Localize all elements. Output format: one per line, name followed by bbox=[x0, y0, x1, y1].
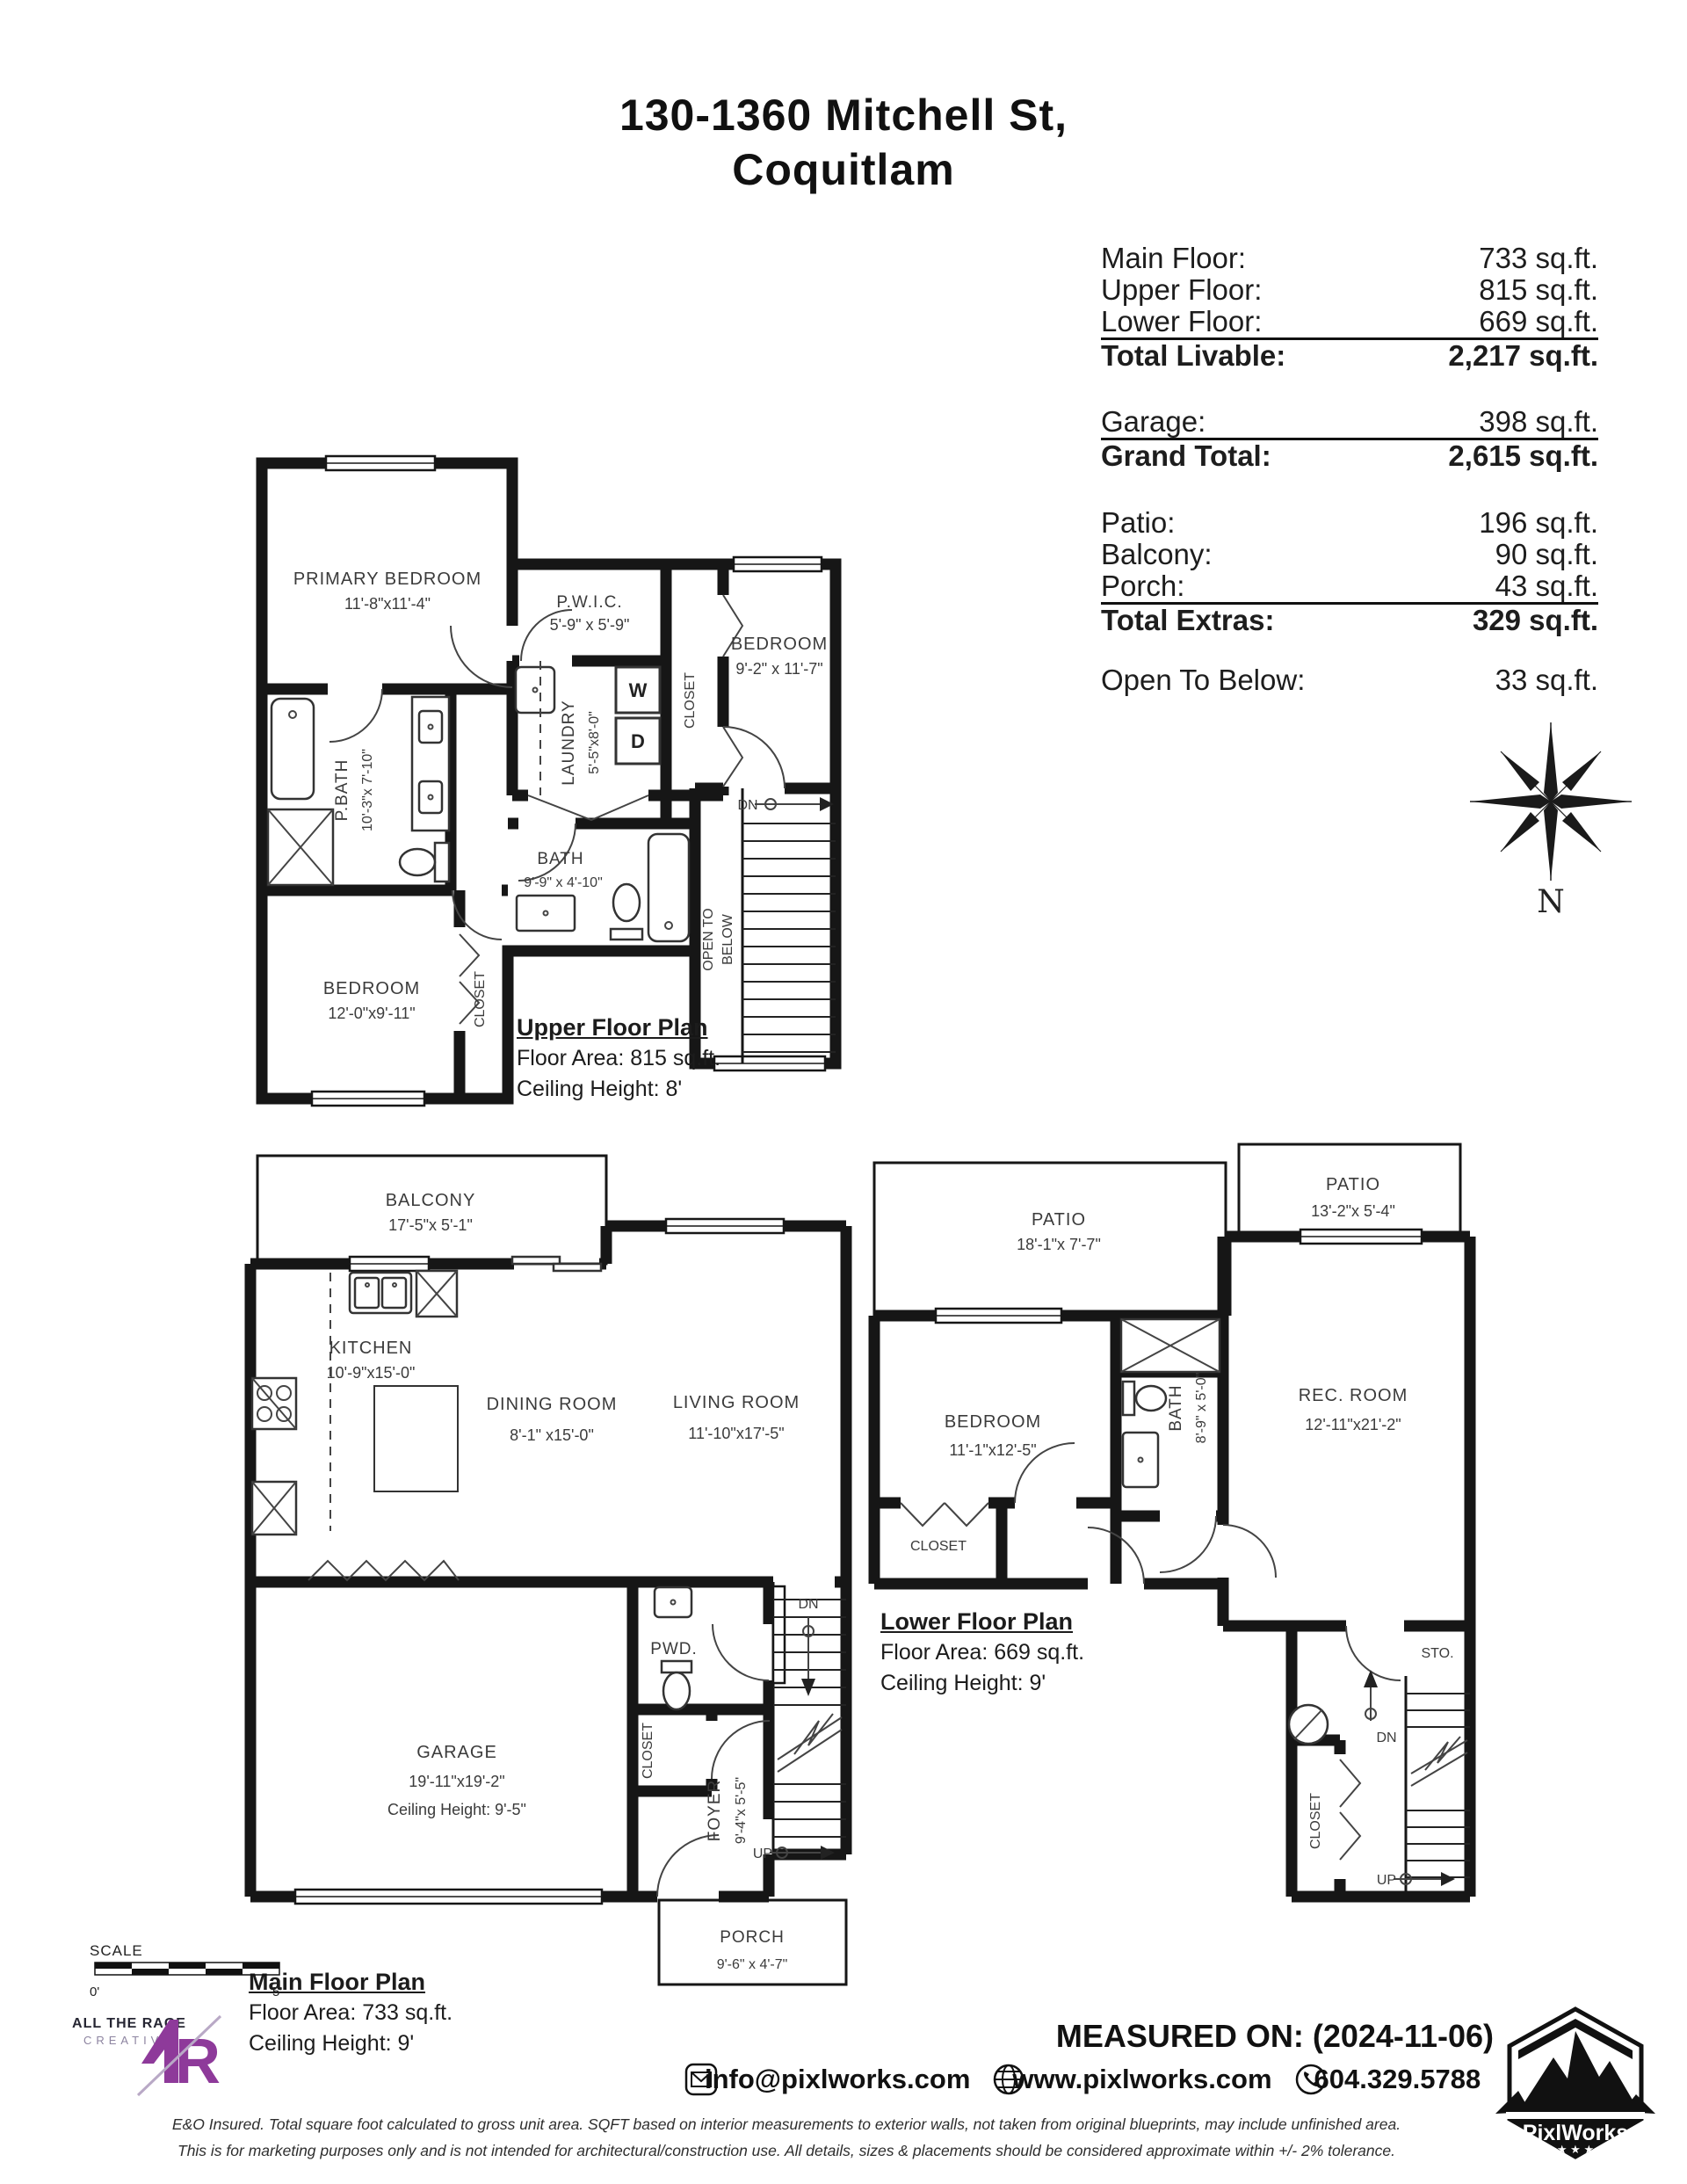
plan-area: Floor Area: 669 sq.ft. bbox=[880, 1637, 1084, 1668]
plan-name: Upper Floor Plan bbox=[517, 1012, 720, 1043]
area-value: 815 sq.ft. bbox=[1479, 274, 1598, 306]
room-dims: 9'-9" x 4'-10" bbox=[524, 875, 603, 890]
room-label: KITCHEN bbox=[329, 1339, 413, 1358]
phone-text: 604.329.5788 bbox=[1314, 2064, 1481, 2095]
room-label: BATH bbox=[537, 850, 583, 868]
sliding-door bbox=[554, 1264, 601, 1271]
area-value: 398 sq.ft. bbox=[1479, 406, 1598, 438]
room-label: GARAGE bbox=[416, 1743, 497, 1762]
area-value: 733 sq.ft. bbox=[1479, 243, 1598, 274]
closet-label: CLOSET bbox=[910, 1539, 967, 1554]
dryer-label: D bbox=[631, 730, 645, 752]
lower-floor-plan: PATIO 18'-1"x 7'-7" PATIO 13'-2"x 5'-4" … bbox=[861, 1134, 1476, 1907]
room-dims: 8'-1" x15'-0" bbox=[510, 1426, 594, 1444]
area-label: Grand Total: bbox=[1101, 440, 1271, 472]
area-row-garage: Garage:398 sq.ft. bbox=[1101, 406, 1598, 438]
area-label: Lower Floor: bbox=[1101, 306, 1262, 337]
room-dims: 19'-11"x19'-2" bbox=[409, 1773, 504, 1790]
room-label: PATIO bbox=[1326, 1175, 1380, 1194]
area-summary-table: Main Floor:733 sq.ft. Upper Floor:815 sq… bbox=[1101, 243, 1598, 696]
room-label: BEDROOM bbox=[731, 635, 828, 654]
room-dims: 13'-2"x 5'-4" bbox=[1311, 1202, 1395, 1220]
area-value: 669 sq.ft. bbox=[1479, 306, 1598, 337]
area-value: 329 sq.ft. bbox=[1473, 605, 1598, 636]
bathtub bbox=[272, 699, 314, 799]
area-label: Porch: bbox=[1101, 570, 1184, 602]
main-stairs bbox=[770, 1582, 846, 1860]
page-title: 130-1360 Mitchell St, Coquitlam bbox=[0, 88, 1687, 197]
atr-monogram-icon: R bbox=[129, 2014, 235, 2102]
dn-label: DN bbox=[737, 798, 757, 813]
toilet-bowl bbox=[613, 884, 640, 921]
pixlworks-logo: PixlWorks ★ ★ ★ bbox=[1492, 2006, 1659, 2169]
area-row-balcony: Balcony:90 sq.ft. bbox=[1101, 539, 1598, 570]
area-value: 2,615 sq.ft. bbox=[1448, 440, 1598, 472]
upper-stair-treads bbox=[742, 824, 836, 1052]
open-to-below-label: BELOW bbox=[720, 913, 735, 965]
room-dims: 10'-3"x 7'-10" bbox=[360, 749, 375, 831]
room-label: PATIO bbox=[1032, 1210, 1086, 1230]
title-line1: 130-1360 Mitchell St, bbox=[0, 88, 1687, 142]
room-label: BEDROOM bbox=[945, 1412, 1041, 1432]
toilet-bowl bbox=[663, 1672, 690, 1709]
room-label: PORCH bbox=[720, 1928, 785, 1947]
lower-plan-title-block: Lower Floor Plan Floor Area: 669 sq.ft. … bbox=[880, 1607, 1084, 1699]
plan-ceiling: Ceiling Height: 9' bbox=[880, 1668, 1084, 1699]
room-dims: 18'-1"x 7'-7" bbox=[1017, 1236, 1101, 1253]
plan-ceiling: Ceiling Height: 9' bbox=[249, 2028, 453, 2059]
area-label: Total Extras: bbox=[1101, 605, 1274, 636]
room-label: PRIMARY BEDROOM bbox=[293, 570, 481, 589]
toilet-bowl bbox=[400, 849, 435, 875]
vanity bbox=[517, 896, 575, 931]
area-label: Upper Floor: bbox=[1101, 274, 1262, 306]
room-label: BALCONY bbox=[386, 1191, 476, 1210]
plan-area: Floor Area: 815 sq.ft. bbox=[517, 1043, 720, 1074]
room-label: P.W.I.C. bbox=[556, 593, 622, 612]
room-label: FOYER bbox=[706, 1780, 724, 1841]
bathtub bbox=[648, 834, 689, 941]
room-label: P.BATH bbox=[333, 759, 351, 822]
room-label: LAUNDRY bbox=[560, 700, 578, 785]
area-row-patio: Patio:196 sq.ft. bbox=[1101, 507, 1598, 539]
room-dims: 17'-5"x 5'-1" bbox=[388, 1216, 473, 1234]
room-dims: 9'-4"x 5'-5" bbox=[734, 1777, 749, 1844]
area-label: Garage: bbox=[1101, 406, 1206, 438]
sink bbox=[655, 1587, 691, 1617]
area-row-open-to-below: Open To Below:33 sq.ft. bbox=[1101, 664, 1598, 696]
area-value: 90 sq.ft. bbox=[1495, 539, 1598, 570]
area-label: Patio: bbox=[1101, 507, 1175, 539]
room-dims: 11'-10"x17'-5" bbox=[688, 1425, 784, 1442]
toilet-tank bbox=[611, 929, 642, 940]
room-label: LIVING ROOM bbox=[673, 1393, 800, 1412]
north-label: N bbox=[1537, 884, 1565, 920]
contact-row: info@pixlworks.com www.pixlworks.com 604… bbox=[684, 2064, 1481, 2095]
floorplan-sheet: 130-1360 Mitchell St, Coquitlam Main Flo… bbox=[0, 0, 1687, 2184]
lower-stairs bbox=[1289, 1670, 1470, 1897]
room-dims: 12'-11"x21'-2" bbox=[1305, 1416, 1401, 1433]
area-label: Open To Below: bbox=[1101, 664, 1305, 696]
dn-label: DN bbox=[798, 1597, 818, 1612]
area-row-total-livable: Total Livable:2,217 sq.ft. bbox=[1101, 337, 1598, 372]
measured-on: MEASURED ON: (2024-11-06) bbox=[1056, 2018, 1494, 2055]
room-dims: 10'-9"x15'-0" bbox=[327, 1364, 416, 1382]
area-label: Total Livable: bbox=[1101, 340, 1285, 372]
plan-ceiling: Ceiling Height: 8' bbox=[517, 1074, 720, 1105]
closet-label: CLOSET bbox=[641, 1723, 655, 1779]
closet-label: CLOSET bbox=[1308, 1793, 1323, 1849]
upper-plan-title-block: Upper Floor Plan Floor Area: 815 sq.ft. … bbox=[517, 1012, 720, 1105]
dn-label: DN bbox=[1376, 1731, 1396, 1745]
laundry-sink bbox=[516, 667, 554, 713]
room-label: BEDROOM bbox=[323, 979, 420, 998]
washer-label: W bbox=[629, 679, 648, 701]
dn-arrow bbox=[755, 797, 834, 811]
area-row-main-floor: Main Floor:733 sq.ft. bbox=[1101, 243, 1598, 274]
storage-label: STO. bbox=[1421, 1646, 1453, 1661]
scale-end: 5' bbox=[272, 1984, 282, 1999]
area-value: 33 sq.ft. bbox=[1495, 664, 1598, 696]
area-row-total-extras: Total Extras:329 sq.ft. bbox=[1101, 602, 1598, 636]
area-label: Main Floor: bbox=[1101, 243, 1246, 274]
area-label: Balcony: bbox=[1101, 539, 1213, 570]
primary-bath-fixtures bbox=[268, 697, 449, 885]
area-row-lower-floor: Lower Floor:669 sq.ft. bbox=[1101, 306, 1598, 337]
area-value: 2,217 sq.ft. bbox=[1448, 340, 1598, 372]
island bbox=[374, 1386, 458, 1491]
area-row-porch: Porch:43 sq.ft. bbox=[1101, 570, 1598, 602]
area-value: 196 sq.ft. bbox=[1479, 507, 1598, 539]
disclaimer-line2: This is for marketing purposes only and … bbox=[79, 2137, 1494, 2164]
closet-label: CLOSET bbox=[473, 971, 488, 1027]
room-dims: 9'-6" x 4'-7" bbox=[717, 1957, 788, 1972]
room-ceiling: Ceiling Height: 9'-5" bbox=[387, 1801, 526, 1818]
disclaimer-line1: E&O Insured. Total square foot calculate… bbox=[79, 2111, 1494, 2137]
pixlworks-name: PixlWorks bbox=[1523, 2121, 1628, 2145]
compass-rose-icon: N bbox=[1450, 712, 1652, 918]
room-label: PWD. bbox=[650, 1640, 698, 1658]
atr-creative-logo: R ALL THE RAGE CREATIVE bbox=[54, 2014, 204, 2047]
email-text: info@pixlworks.com bbox=[705, 2064, 970, 2095]
main-floor-plan: BALCONY 17'-5"x 5'-1" KITCHEN 10'-9"x15'… bbox=[237, 1134, 861, 2074]
scale-start: 0' bbox=[90, 1984, 99, 1999]
room-label: DINING ROOM bbox=[487, 1395, 618, 1414]
up-label: UP bbox=[753, 1847, 772, 1861]
room-dims: 11'-1"x12'-5" bbox=[949, 1441, 1036, 1459]
room-dims: 8'-9" x 5'-0" bbox=[1194, 1373, 1209, 1444]
toilet-tank bbox=[1123, 1382, 1134, 1415]
area-value: 43 sq.ft. bbox=[1495, 570, 1598, 602]
lower-windows bbox=[936, 1230, 1422, 1323]
main-walls bbox=[250, 1226, 846, 1897]
plan-name: Lower Floor Plan bbox=[880, 1607, 1084, 1637]
disclaimer: E&O Insured. Total square foot calculate… bbox=[79, 2111, 1494, 2164]
toilet-bowl bbox=[1136, 1386, 1166, 1411]
toilet-tank bbox=[662, 1661, 691, 1672]
up-label: UP bbox=[1377, 1873, 1396, 1888]
room-dims: 12'-0"x9'-11" bbox=[328, 1005, 415, 1022]
room-label: REC. ROOM bbox=[1299, 1386, 1408, 1405]
area-row-upper-floor: Upper Floor:815 sq.ft. bbox=[1101, 274, 1598, 306]
vanity bbox=[1123, 1433, 1158, 1487]
room-dims: 5'-9" x 5'-9" bbox=[550, 616, 630, 634]
room-dims: 9'-2" x 11'-7" bbox=[735, 660, 822, 678]
kitchen-fixtures bbox=[252, 1271, 459, 1580]
room-dims: 11'-8"x11'-4" bbox=[344, 595, 431, 613]
closet-label: CLOSET bbox=[683, 672, 698, 729]
room-dims: 5'-5"x8'-0" bbox=[587, 711, 602, 774]
scale-bar: SCALE 0' 5' bbox=[79, 1938, 308, 2008]
room-label: BATH bbox=[1167, 1384, 1185, 1431]
area-row-grand-total: Grand Total:2,615 sq.ft. bbox=[1101, 438, 1598, 472]
scale-label: SCALE bbox=[90, 1942, 143, 1959]
stars-decoration: ★ ★ ★ bbox=[1557, 2143, 1594, 2156]
website-text: www.pixlworks.com bbox=[1012, 2064, 1271, 2095]
toilet-tank bbox=[435, 843, 449, 882]
title-line2: Coquitlam bbox=[0, 142, 1687, 197]
open-to-below-label: OPEN TO bbox=[701, 908, 716, 970]
